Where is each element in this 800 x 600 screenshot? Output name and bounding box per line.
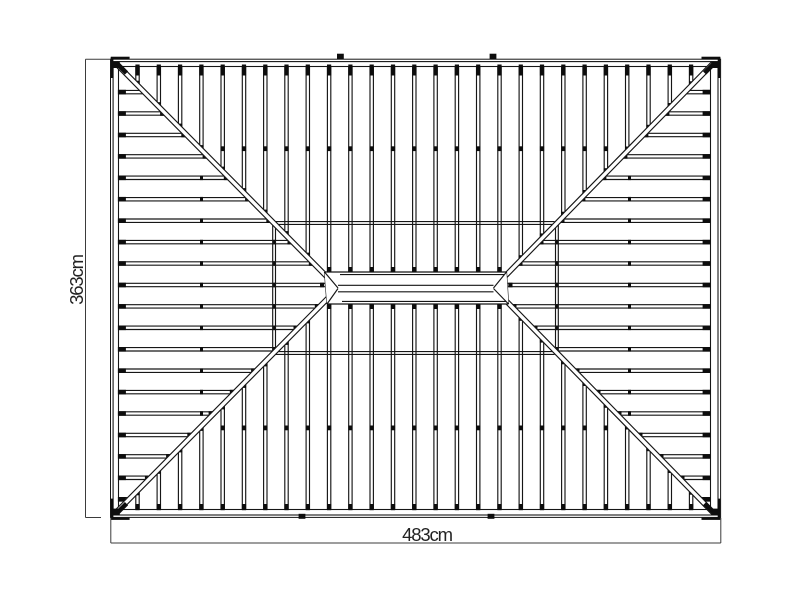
svg-text:363cm: 363cm (66, 254, 87, 305)
svg-text:483cm: 483cm (402, 524, 453, 545)
